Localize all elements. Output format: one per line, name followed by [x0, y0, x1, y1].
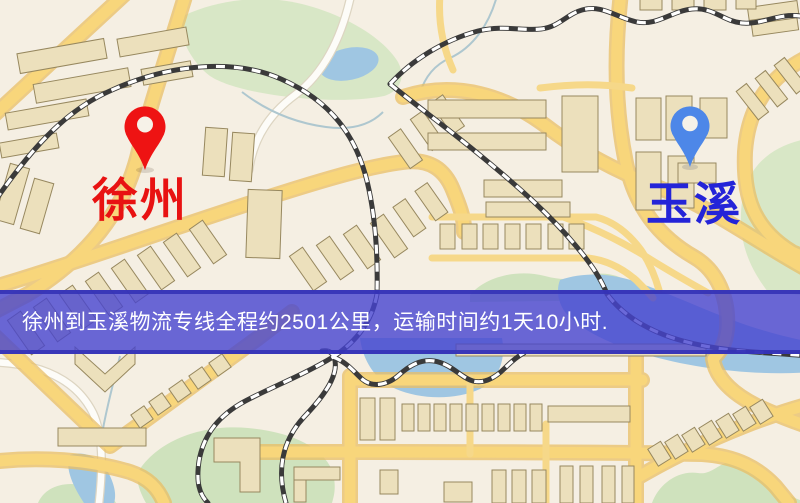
destination-label: 玉溪	[646, 179, 742, 230]
pin-hole	[137, 117, 153, 133]
origin-label: 徐州	[91, 175, 188, 226]
route-banner-text: 徐州到玉溪物流专线全程约2501公里，运输时间约1天10小时.	[22, 312, 608, 333]
building-row	[402, 404, 542, 431]
map-canvas[interactable]: 徐州 玉溪	[0, 0, 800, 503]
route-banner: 徐州到玉溪物流专线全程约2501公里，运输时间约1天10小时.	[0, 290, 800, 354]
route-map-image: 徐州 玉溪 徐州到玉溪物流专线全程约2501公里，运输时间约1天10小时.	[0, 0, 800, 503]
pin-hole	[682, 116, 698, 132]
